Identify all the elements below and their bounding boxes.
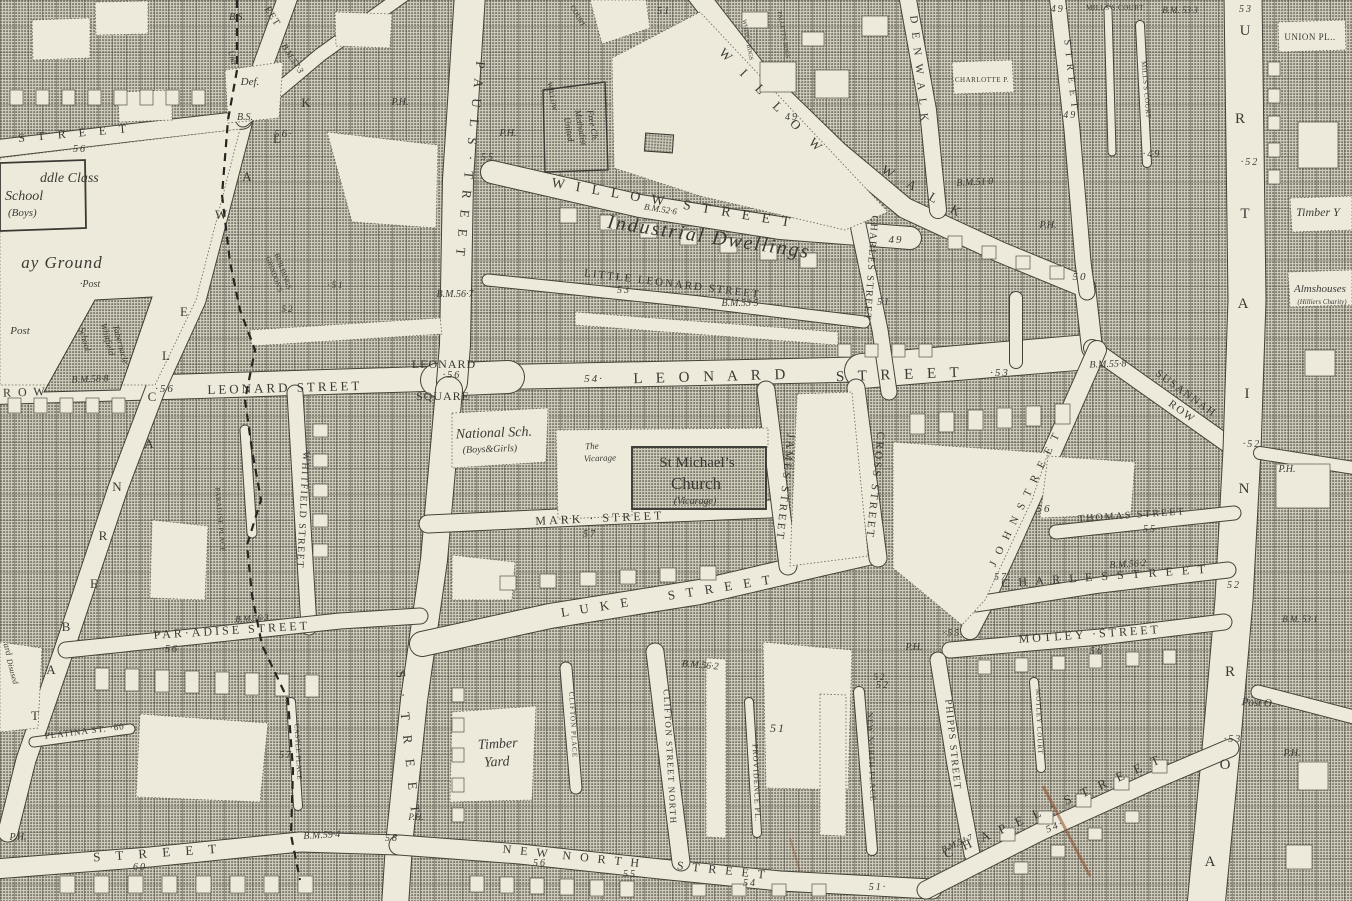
svg-text:A: A bbox=[144, 436, 154, 451]
svg-text:B.M.53·5: B.M.53·5 bbox=[722, 298, 759, 309]
svg-text:52: 52 bbox=[874, 672, 887, 682]
svg-text:B.M.56·2: B.M.56·2 bbox=[1109, 558, 1146, 571]
svg-text:57: 57 bbox=[583, 529, 597, 540]
svg-text:58: 58 bbox=[385, 833, 399, 844]
svg-text:A: A bbox=[242, 169, 252, 184]
svg-text:CHARLOTTE P.: CHARLOTTE P. bbox=[955, 76, 1009, 84]
svg-text:Yard: Yard bbox=[484, 754, 511, 770]
svg-text:K: K bbox=[301, 95, 311, 110]
svg-text:51: 51 bbox=[877, 297, 891, 308]
svg-text:55: 55 bbox=[481, 152, 495, 163]
svg-text:B.M.51·0: B.M.51·0 bbox=[956, 176, 993, 189]
svg-text:B.S.: B.S. bbox=[237, 112, 253, 123]
svg-text:·49: ·49 bbox=[1059, 110, 1078, 121]
svg-text:B.M.56·7: B.M.56·7 bbox=[437, 289, 475, 300]
svg-text:56·: 56· bbox=[274, 128, 294, 140]
svg-text:A: A bbox=[1238, 296, 1249, 312]
svg-text:·52: ·52 bbox=[1241, 157, 1260, 168]
svg-text:E: E bbox=[90, 576, 98, 591]
svg-text:55: 55 bbox=[1143, 524, 1157, 535]
svg-text:R: R bbox=[99, 528, 108, 543]
svg-text:Church: Church bbox=[671, 474, 722, 493]
svg-text:B.M.56·3: B.M.56·3 bbox=[235, 612, 269, 624]
svg-text:P.H.: P.H. bbox=[904, 642, 922, 653]
svg-text:55: 55 bbox=[623, 869, 637, 880]
svg-text:National Sch.: National Sch. bbox=[455, 425, 533, 443]
svg-text:60: 60 bbox=[133, 862, 147, 873]
svg-text:B.M. 53·3: B.M. 53·3 bbox=[1162, 5, 1198, 15]
svg-text:·53: ·53 bbox=[990, 367, 1010, 379]
svg-text:W: W bbox=[215, 207, 228, 222]
svg-text:50: 50 bbox=[1073, 271, 1088, 283]
svg-text:(Hilliers Charity): (Hilliers Charity) bbox=[1297, 298, 1347, 306]
svg-text:49: 49 bbox=[889, 234, 904, 246]
svg-text:The: The bbox=[585, 441, 599, 451]
svg-text:51: 51 bbox=[770, 721, 786, 735]
svg-text:ay Ground: ay Ground bbox=[21, 253, 103, 272]
svg-text:56: 56 bbox=[1090, 646, 1104, 657]
svg-text:52: 52 bbox=[1227, 580, 1241, 591]
svg-text:56: 56 bbox=[73, 144, 87, 155]
svg-text:·52: ·52 bbox=[1243, 439, 1262, 450]
svg-text:UNION PL..: UNION PL.. bbox=[1284, 32, 1335, 42]
svg-text:51·: 51· bbox=[869, 882, 888, 893]
svg-text:N: N bbox=[1239, 481, 1250, 497]
svg-text:·55: ·55 bbox=[943, 628, 962, 639]
svg-text:B.M. 53·1: B.M. 53·1 bbox=[1282, 614, 1318, 624]
svg-text:P.H.: P.H. bbox=[407, 812, 423, 822]
svg-text:(Boys&Girls): (Boys&Girls) bbox=[463, 443, 518, 456]
svg-text:R O W: R O W bbox=[3, 384, 47, 400]
svg-text:P.H.: P.H. bbox=[1038, 220, 1056, 231]
svg-text:A: A bbox=[46, 662, 56, 677]
svg-text:LEONARD: LEONARD bbox=[412, 357, 476, 371]
svg-text:52: 52 bbox=[282, 304, 295, 314]
svg-text:Def.: Def. bbox=[240, 76, 260, 88]
svg-text:SQUARE: SQUARE bbox=[416, 389, 470, 403]
svg-text:54·: 54· bbox=[584, 373, 604, 385]
svg-text:P.H.: P.H. bbox=[8, 832, 26, 843]
svg-text:Vicarage: Vicarage bbox=[584, 452, 617, 463]
svg-text:·56: ·56 bbox=[155, 383, 175, 395]
svg-text:St Michael’s: St Michael’s bbox=[659, 455, 735, 471]
svg-text:L: L bbox=[162, 348, 170, 363]
svg-text:School: School bbox=[5, 189, 43, 204]
svg-text:Post: Post bbox=[9, 325, 31, 337]
svg-text:B.S.: B.S. bbox=[229, 12, 245, 23]
svg-text:R: R bbox=[1225, 664, 1235, 680]
svg-text:57: 57 bbox=[279, 750, 293, 761]
svg-text:P.H.: P.H. bbox=[498, 128, 516, 139]
svg-text:P.H.: P.H. bbox=[1282, 748, 1300, 759]
svg-text:·Post: ·Post bbox=[80, 279, 101, 290]
svg-text:56: 56 bbox=[165, 644, 179, 655]
svg-text:56: 56 bbox=[533, 858, 547, 869]
svg-text:(Boys): (Boys) bbox=[8, 207, 37, 219]
svg-text:I: I bbox=[1245, 386, 1250, 402]
svg-text:Almshouses: Almshouses bbox=[1293, 283, 1346, 295]
svg-text:B.M.58·8: B.M.58·8 bbox=[71, 373, 108, 385]
svg-text:53: 53 bbox=[1239, 4, 1253, 15]
svg-text:56: 56 bbox=[1037, 503, 1052, 515]
svg-text:49: 49 bbox=[785, 112, 799, 123]
svg-text:C: C bbox=[148, 389, 157, 404]
svg-text:A: A bbox=[1205, 854, 1216, 870]
svg-text:54: 54 bbox=[743, 878, 757, 889]
svg-text:T: T bbox=[1240, 206, 1249, 222]
svg-text:B.M.55·8: B.M.55·8 bbox=[1089, 358, 1126, 370]
svg-text:51: 51 bbox=[657, 6, 671, 17]
svg-text:MILLS'S COURT: MILLS'S COURT bbox=[1086, 4, 1144, 12]
svg-text:P.H.: P.H. bbox=[390, 97, 408, 108]
svg-text:B.M.59·4: B.M.59·4 bbox=[303, 829, 340, 842]
svg-text:·51: ·51 bbox=[327, 280, 344, 290]
svg-text:E: E bbox=[180, 304, 188, 319]
svg-text:N: N bbox=[112, 479, 122, 494]
svg-text:·56: ·56 bbox=[443, 370, 462, 381]
svg-text:B: B bbox=[62, 619, 71, 634]
svg-text:O: O bbox=[1220, 757, 1231, 773]
svg-text:53: 53 bbox=[617, 285, 631, 296]
svg-text:(Vicarage): (Vicarage) bbox=[674, 496, 717, 507]
svg-text:Post O.: Post O. bbox=[1240, 696, 1275, 710]
svg-text:T: T bbox=[31, 708, 39, 723]
svg-text:Timber: Timber bbox=[478, 736, 519, 753]
svg-text:49·: 49· bbox=[1051, 4, 1070, 15]
svg-text:Timber Y: Timber Y bbox=[1296, 205, 1341, 219]
svg-text:·49: ·49 bbox=[1143, 149, 1162, 160]
svg-text:57: 57 bbox=[994, 572, 1008, 583]
svg-text:ddle Class: ddle Class bbox=[40, 171, 99, 186]
svg-text:U: U bbox=[1240, 23, 1251, 39]
svg-text:R: R bbox=[1235, 111, 1245, 127]
svg-text:·53: ·53 bbox=[1224, 734, 1243, 745]
svg-text:P.H.: P.H. bbox=[1277, 464, 1295, 475]
